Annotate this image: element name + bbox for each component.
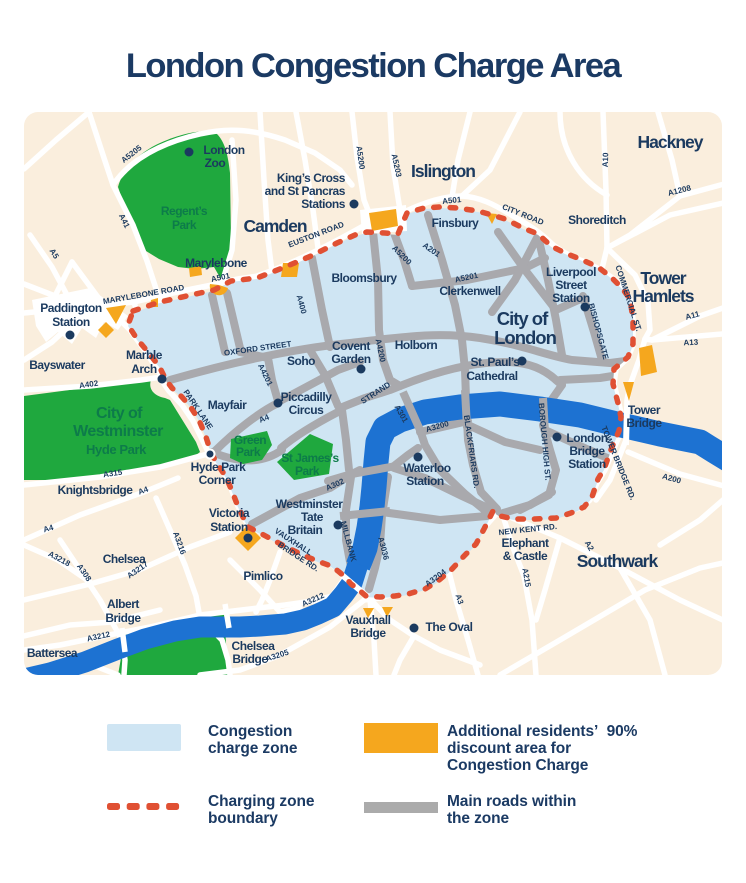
- svg-text:Park: Park: [172, 218, 197, 232]
- svg-text:Hamlets: Hamlets: [632, 286, 694, 306]
- svg-text:Marylebone: Marylebone: [185, 256, 248, 270]
- svg-text:Tower: Tower: [628, 403, 661, 417]
- svg-text:Main roads within: Main roads within: [447, 793, 576, 810]
- svg-text:Tate: Tate: [301, 510, 324, 524]
- svg-text:Marble: Marble: [126, 348, 163, 362]
- svg-text:Camden: Camden: [243, 216, 306, 236]
- svg-text:Holborn: Holborn: [395, 338, 438, 352]
- svg-text:Tower: Tower: [640, 268, 686, 288]
- svg-text:Chelsea: Chelsea: [232, 639, 276, 653]
- svg-text:Islington: Islington: [411, 161, 475, 181]
- svg-text:boundary: boundary: [208, 810, 278, 827]
- svg-text:Waterloo: Waterloo: [403, 461, 450, 475]
- svg-text:& Castle: & Castle: [503, 549, 548, 563]
- svg-text:Clerkenwell: Clerkenwell: [439, 284, 500, 298]
- svg-text:Bridge: Bridge: [350, 626, 386, 640]
- svg-text:Hyde Park: Hyde Park: [86, 442, 147, 457]
- svg-text:Bridge: Bridge: [569, 444, 605, 458]
- svg-text:Station: Station: [406, 474, 444, 488]
- svg-text:Congestion Charge: Congestion Charge: [447, 757, 589, 774]
- svg-text:Westminster: Westminster: [276, 497, 344, 511]
- svg-text:Bloomsbury: Bloomsbury: [331, 271, 397, 285]
- svg-text:Regent’s: Regent’s: [161, 204, 208, 218]
- svg-text:Piccadilly: Piccadilly: [281, 390, 333, 404]
- svg-text:Britain: Britain: [288, 523, 323, 537]
- svg-text:Arch: Arch: [131, 362, 157, 376]
- svg-text:charge zone: charge zone: [208, 740, 298, 757]
- svg-text:Westminster: Westminster: [73, 423, 163, 440]
- svg-text:Circus: Circus: [289, 403, 324, 417]
- svg-text:Corner: Corner: [199, 473, 236, 487]
- svg-text:Cathedral: Cathedral: [466, 369, 517, 383]
- svg-text:Soho: Soho: [287, 354, 315, 368]
- svg-text:the zone: the zone: [447, 810, 510, 827]
- svg-text:Albert: Albert: [107, 597, 139, 611]
- svg-text:Stations: Stations: [301, 197, 346, 211]
- svg-text:Victoria: Victoria: [209, 506, 250, 520]
- svg-text:Paddington: Paddington: [40, 301, 102, 315]
- svg-text:Shoreditch: Shoreditch: [568, 213, 626, 227]
- svg-text:Station: Station: [568, 457, 606, 471]
- svg-text:City of: City of: [96, 405, 143, 422]
- svg-text:Vauxhall: Vauxhall: [345, 613, 390, 627]
- svg-text:Bridge: Bridge: [105, 611, 141, 625]
- svg-text:and St Pancras: and St Pancras: [265, 184, 346, 198]
- svg-text:Elephant: Elephant: [501, 536, 549, 550]
- svg-text:Pimlico: Pimlico: [243, 569, 282, 583]
- svg-text:Charging zone: Charging zone: [208, 793, 315, 810]
- svg-text:Mayfair: Mayfair: [208, 398, 247, 412]
- svg-text:Knightsbridge: Knightsbridge: [58, 483, 134, 497]
- svg-text:Bayswater: Bayswater: [29, 358, 85, 372]
- svg-text:A13: A13: [683, 338, 699, 348]
- svg-text:Bridge: Bridge: [626, 416, 662, 430]
- svg-text:King’s Cross: King’s Cross: [277, 171, 346, 185]
- svg-text:The Oval: The Oval: [425, 620, 472, 634]
- svg-text:Park: Park: [295, 464, 320, 478]
- svg-text:London: London: [494, 327, 557, 348]
- svg-text:Street: Street: [555, 278, 587, 292]
- svg-text:Additional residents’ 90%: Additional residents’ 90%: [447, 723, 638, 740]
- svg-text:St James’s: St James’s: [281, 451, 339, 465]
- svg-text:Battersea: Battersea: [27, 646, 78, 660]
- svg-text:discount area for: discount area for: [447, 740, 571, 757]
- svg-text:London: London: [203, 143, 244, 157]
- svg-text:Liverpool: Liverpool: [546, 265, 596, 279]
- svg-text:Finsbury: Finsbury: [432, 216, 479, 230]
- svg-text:Park: Park: [236, 445, 261, 459]
- svg-text:Hyde Park: Hyde Park: [191, 460, 246, 474]
- svg-text:Garden: Garden: [331, 352, 370, 366]
- svg-text:Zoo: Zoo: [205, 156, 226, 170]
- svg-text:St. Paul’s: St. Paul’s: [470, 355, 520, 369]
- svg-text:Covent: Covent: [332, 339, 370, 353]
- svg-text:Bridge: Bridge: [232, 652, 268, 666]
- svg-text:A10: A10: [601, 152, 611, 168]
- svg-text:Congestion: Congestion: [208, 723, 292, 740]
- svg-text:Station: Station: [210, 520, 248, 534]
- svg-text:Hackney: Hackney: [638, 132, 704, 152]
- svg-text:London Congestion Charge Area: London Congestion Charge Area: [126, 47, 623, 85]
- svg-text:Station: Station: [52, 315, 90, 329]
- svg-text:Southwark: Southwark: [577, 551, 659, 571]
- svg-text:City of: City of: [497, 308, 549, 329]
